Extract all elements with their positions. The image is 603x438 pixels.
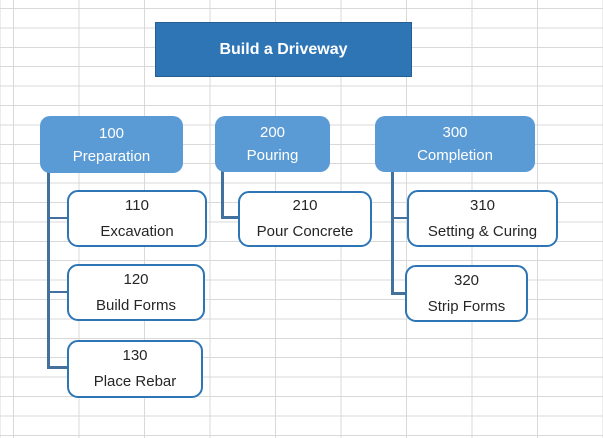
wbs-node-code: 320	[454, 268, 479, 294]
wbs-node-label: Build Forms	[96, 293, 176, 319]
connector-pouring-to-pour-concrete[interactable]	[221, 216, 238, 219]
wbs-node-code: 110	[125, 193, 149, 219]
wbs-root-label: Build a Driveway	[219, 41, 347, 59]
wbs-node-label: Preparation	[73, 145, 151, 168]
wbs-node-code: 310	[470, 193, 495, 219]
wbs-node-label: Completion	[417, 144, 493, 167]
wbs-root-node[interactable]: Build a Driveway	[155, 22, 412, 77]
wbs-node-label: Place Rebar	[94, 369, 177, 395]
wbs-node-code: 100	[99, 122, 124, 145]
wbs-node-label: Setting & Curing	[428, 219, 537, 245]
connector-preparation-vertical[interactable]	[47, 172, 50, 368]
wbs-task-120-build-forms[interactable]: 120 Build Forms	[67, 264, 205, 321]
wbs-branch-300-completion[interactable]: 300 Completion	[375, 116, 535, 172]
connector-completion-to-setting-curing[interactable]	[394, 217, 407, 219]
wbs-node-code: 120	[123, 267, 148, 293]
wbs-task-210-pour-concrete[interactable]: 210 Pour Concrete	[238, 191, 372, 247]
wbs-node-code: 300	[442, 121, 467, 144]
wbs-node-label: Pouring	[247, 144, 299, 167]
connector-preparation-to-place-rebar[interactable]	[47, 366, 67, 369]
connector-preparation-to-excavation[interactable]	[50, 217, 67, 219]
wbs-node-label: Pour Concrete	[257, 219, 354, 245]
wbs-task-320-strip-forms[interactable]: 320 Strip Forms	[405, 265, 528, 322]
wbs-branch-100-preparation[interactable]: 100 Preparation	[40, 116, 183, 173]
wbs-node-code: 210	[292, 193, 317, 219]
wbs-task-110-excavation[interactable]: 110 Excavation	[67, 190, 207, 247]
connector-preparation-to-build-forms[interactable]	[50, 291, 67, 293]
wbs-node-code: 200	[260, 121, 285, 144]
wbs-node-label: Strip Forms	[428, 294, 506, 320]
spreadsheet-grid-background: Build a Driveway 100 Preparation 200 Pou…	[0, 0, 603, 438]
connector-completion-vertical[interactable]	[391, 171, 394, 295]
wbs-task-130-place-rebar[interactable]: 130 Place Rebar	[67, 340, 203, 398]
wbs-node-label: Excavation	[100, 219, 173, 245]
wbs-branch-200-pouring[interactable]: 200 Pouring	[215, 116, 330, 172]
wbs-task-310-setting-curing[interactable]: 310 Setting & Curing	[407, 190, 558, 247]
connector-pouring-vertical[interactable]	[221, 171, 224, 219]
wbs-node-code: 130	[122, 343, 147, 369]
connector-completion-to-strip-forms[interactable]	[391, 292, 405, 295]
